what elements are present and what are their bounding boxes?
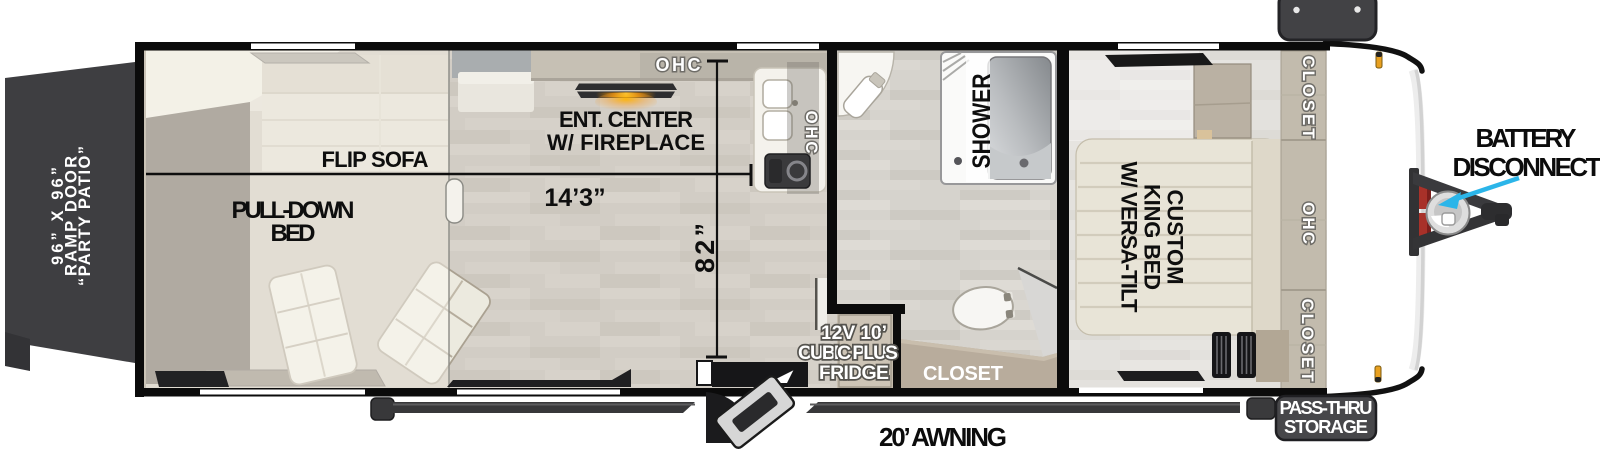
svg-text:ENT. CENTERW/ FIREPLACE: ENT. CENTERW/ FIREPLACE xyxy=(547,107,705,155)
svg-text:FLIP SOFA: FLIP SOFA xyxy=(322,147,429,172)
svg-text:CLOSET: CLOSET xyxy=(923,363,1003,385)
svg-text:OHC: OHC xyxy=(1299,202,1318,244)
svg-text:DISCONNECT: DISCONNECT xyxy=(1453,152,1600,182)
svg-text:OHC: OHC xyxy=(656,55,701,75)
svg-text:PASS-THRUSTORAGE: PASS-THRUSTORAGE xyxy=(1280,397,1373,437)
svg-text:20’ AWNING: 20’ AWNING xyxy=(879,422,1007,450)
svg-text:SHOWER: SHOWER xyxy=(968,74,996,169)
svg-text:82”: 82” xyxy=(690,223,720,273)
svg-text:14’3”: 14’3” xyxy=(544,184,605,212)
svg-text:BATTERY: BATTERY xyxy=(1476,123,1577,153)
svg-text:OHC: OHC xyxy=(802,111,821,154)
